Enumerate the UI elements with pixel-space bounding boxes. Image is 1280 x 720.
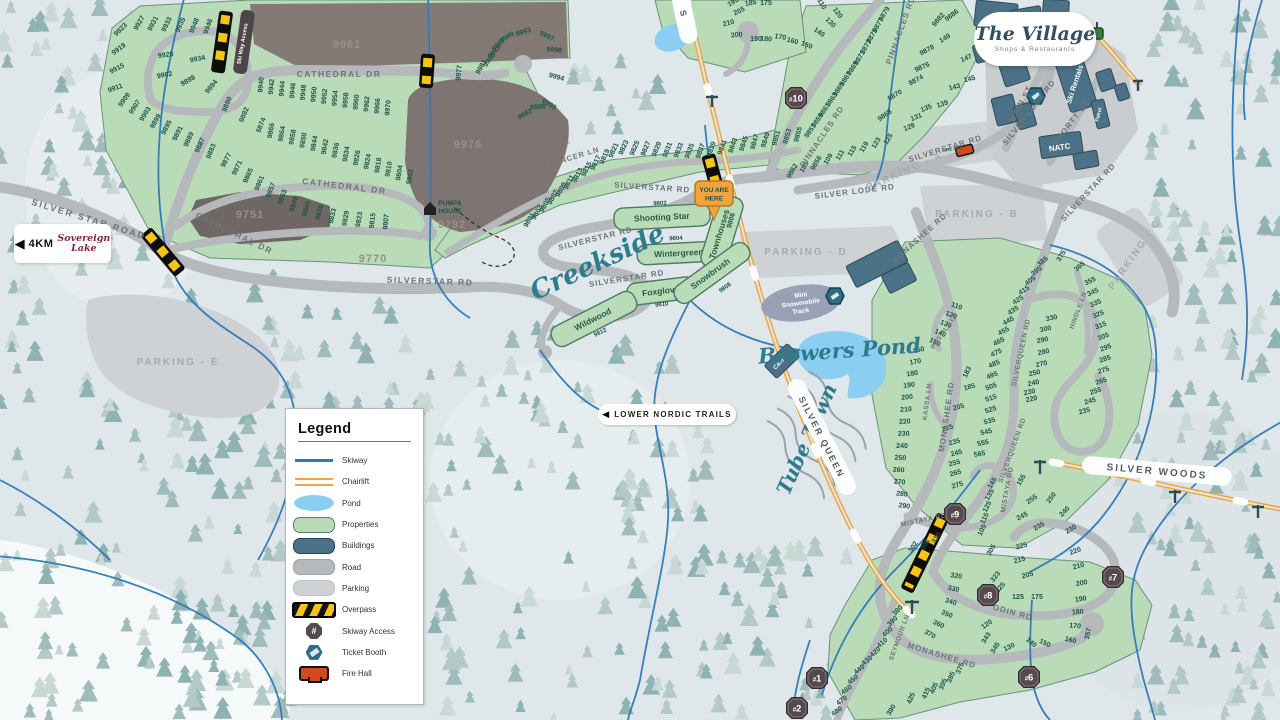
lot-number: 180 [1072, 609, 1084, 617]
legend-item-label: Road [342, 563, 361, 572]
legend-item-label: Fire Hall [342, 669, 372, 678]
parking-icon [286, 580, 342, 596]
legend-item-label: Buildings [342, 541, 374, 550]
lot-number: 9986 [530, 103, 546, 111]
dark-lot-label: 9751 [236, 209, 264, 221]
ticket-booth-icon [826, 288, 844, 304]
pump-house-label: PUMP& [438, 200, 462, 207]
skiway-access-icon: # [286, 623, 342, 639]
skiway-access-badge: #7 [1103, 567, 1123, 587]
skiway-access-badge: #10 [786, 88, 806, 108]
resort-map: Shooting Star9802Wintergreen9804Townhous… [0, 0, 1280, 720]
skiway-access-badge: #8 [978, 585, 998, 605]
lot-number: 9954 [331, 90, 339, 106]
property-number: 9804 [669, 236, 683, 243]
skiway-access-badge: #2 [787, 698, 807, 718]
legend-item-label: Skiway Access [342, 627, 395, 636]
legend-item-label: Overpass [342, 605, 376, 614]
legend-item-skiway: Skiway [286, 450, 423, 471]
lot-number: 9998 [546, 46, 562, 54]
map-canvas: Shooting Star9802Wintergreen9804Townhous… [0, 0, 1280, 720]
lot-number: 180 [760, 36, 772, 44]
buildings-icon [286, 538, 342, 554]
road-icon [286, 559, 342, 575]
left-arrow-icon: ◀ [15, 237, 25, 250]
legend-item-parking: Parking [286, 578, 423, 599]
lot-number: 200 [901, 394, 913, 402]
lot-number: 260 [893, 467, 905, 475]
lot-number: 240 [896, 443, 908, 450]
property-number: 9802 [653, 201, 667, 208]
snow-patch [430, 360, 690, 600]
lower-nordic-trails-sign: ◀ LOWER NORDIC TRAILS [598, 404, 736, 425]
lot-number: 190 [903, 382, 916, 390]
lot-number: 170 [1069, 623, 1081, 631]
lot-number: 9977 [455, 65, 463, 81]
ticket-booth-icon [286, 645, 342, 660]
legend-item-label: Pond [342, 499, 361, 508]
road-label: CATHEDRAL DR [297, 69, 382, 79]
legend-item-label: Chairlift [342, 477, 369, 486]
pump-house-label: HOUSE [438, 208, 462, 215]
skiway-icon [286, 459, 342, 462]
legend-item-label: Ticket Booth [342, 648, 386, 657]
lot-number: 9952 [321, 88, 329, 104]
left-arrow-icon: ◀ [602, 409, 609, 420]
lot-number: 250 [894, 455, 906, 462]
properties-icon [286, 517, 342, 533]
dark-lot-label: 9976 [454, 139, 482, 151]
lot-number: 220 [899, 418, 911, 426]
parking-label: PARKING - E [137, 357, 220, 368]
distance-label: 4KM [29, 238, 54, 250]
parking-label: PARKING - D [764, 247, 847, 258]
legend-item-ticket-booth: Ticket Booth [286, 642, 423, 663]
legend-divider [298, 441, 411, 442]
lot-number: 9807 [382, 214, 390, 230]
sovereign-lake-sign: ◀ 4KM Sovereign Lake [14, 224, 111, 263]
legend-title: Legend [298, 421, 411, 437]
dark-lot-label: 9792 [438, 219, 466, 231]
legend-item-road: Road [286, 556, 423, 577]
lot-number: 9962 [363, 96, 371, 112]
legend-item-label: Properties [342, 520, 378, 529]
legend-item-pond: Pond [286, 493, 423, 514]
village-subtitle: Shops & Restaurants [995, 46, 1075, 53]
pond-icon [286, 495, 342, 511]
sovereign-lake-logo: Sovereign Lake [57, 234, 110, 253]
lot-number: 9966 [374, 98, 382, 114]
overpass-icon [286, 602, 342, 618]
lot-number: 9940 [257, 77, 265, 93]
chairlift-icon [286, 478, 342, 486]
lot-number: 280 [896, 490, 908, 498]
lot-number: 9970 [384, 100, 392, 116]
lot-number: 270 [894, 479, 906, 487]
lot-number: 175 [1031, 594, 1043, 601]
skiway-access-badge: #6 [1019, 667, 1039, 687]
lot-number: 9942 [268, 79, 276, 95]
lot-number: 175 [760, 0, 772, 7]
lot-number: 230 [898, 431, 910, 438]
legend-item-skiway-access: #Skiway Access [286, 620, 423, 641]
legend-item-overpass: Overpass [286, 599, 423, 620]
nordic-label: LOWER NORDIC TRAILS [614, 410, 731, 419]
legend-panel: Legend SkiwayChairliftPondPropertiesBuil… [285, 408, 424, 705]
legend-item-properties: Properties [286, 514, 423, 535]
lot-number: 9958 [342, 92, 350, 108]
lot-number: 9950 [310, 86, 318, 102]
dark-lot-label: 9770 [359, 253, 387, 265]
you-are-here-text: HERE [705, 196, 724, 203]
you-are-here-text: YOU ARE [699, 187, 729, 194]
legend-item-fire-hall: Fire Hall [286, 663, 423, 684]
lot-number: 9960 [353, 94, 361, 110]
village-name: The Village [975, 25, 1095, 44]
skiway-access-badge: #9 [945, 504, 965, 524]
fire-hall-icon [286, 666, 342, 681]
lot-number: 9946 [289, 82, 297, 98]
legend-items: SkiwayChairliftPondPropertiesBuildingsRo… [286, 450, 423, 684]
lot-number: 9948 [300, 84, 308, 100]
legend-item-label: Skiway [342, 456, 367, 465]
village-sign: The Village Shops & Restaurants [974, 12, 1096, 66]
overpass [419, 54, 435, 89]
legend-item-buildings: Buildings [286, 535, 423, 556]
legend-item-chairlift: Chairlift [286, 471, 423, 492]
lot-number: 125 [1012, 594, 1024, 601]
skiway-access-badge: #1 [807, 668, 827, 688]
dark-lot-label: 9961 [333, 39, 361, 51]
parking-label: PARKING - B [935, 209, 1018, 220]
legend-item-label: Parking [342, 584, 369, 593]
lot-number: 9944 [279, 81, 287, 97]
lake-word: Lake [71, 244, 96, 254]
lot-number: 210 [900, 406, 912, 414]
lot-number: 200 [731, 32, 743, 40]
